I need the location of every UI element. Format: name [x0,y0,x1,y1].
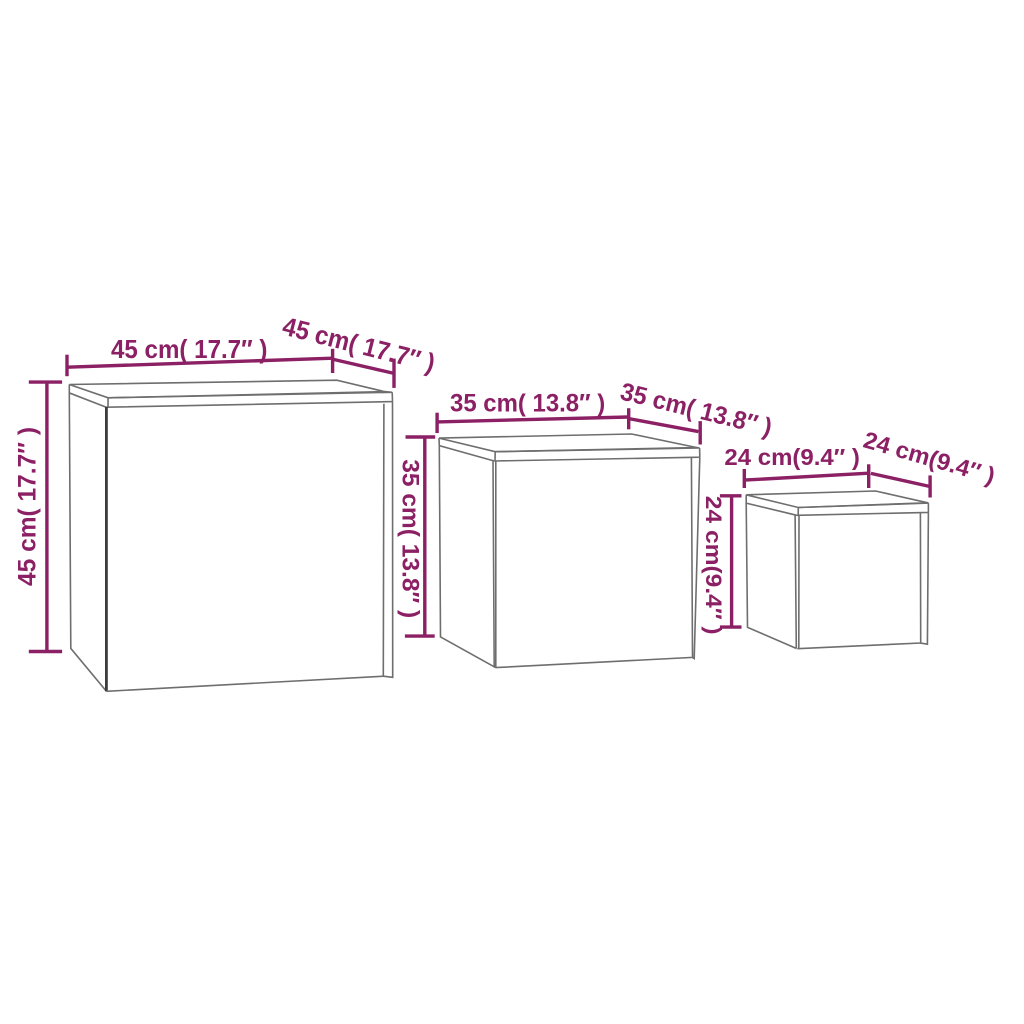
svg-text:24 cm(9.4″ ): 24 cm(9.4″ ) [701,496,726,635]
svg-text:24 cm(9.4″ ): 24 cm(9.4″ ) [724,444,860,470]
svg-text:45 cm( 17.7″ ): 45 cm( 17.7″ ) [111,334,267,364]
svg-text:45 cm( 17.7″ ): 45 cm( 17.7″ ) [14,427,42,586]
svg-text:35 cm( 13.8″ ): 35 cm( 13.8″ ) [450,390,605,418]
svg-text:35 cm( 13.8″ ): 35 cm( 13.8″ ) [397,459,424,618]
